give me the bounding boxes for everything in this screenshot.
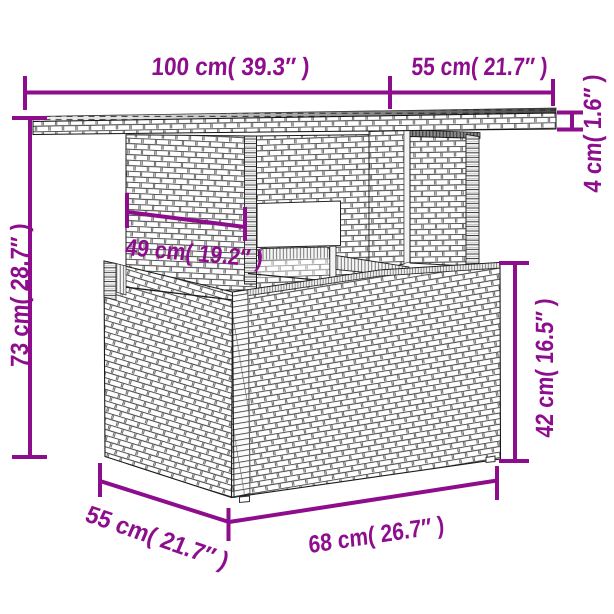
svg-text:4 cm( 1.6″ ): 4 cm( 1.6″ ): [579, 73, 607, 193]
svg-text:73 cm( 28.7″ ): 73 cm( 28.7″ ): [6, 222, 34, 368]
svg-text:100 cm( 39.3″ ): 100 cm( 39.3″ ): [151, 53, 311, 81]
svg-text:42 cm( 16.5″ ): 42 cm( 16.5″ ): [531, 297, 559, 438]
svg-text:55 cm( 21.7″ ): 55 cm( 21.7″ ): [411, 53, 549, 81]
